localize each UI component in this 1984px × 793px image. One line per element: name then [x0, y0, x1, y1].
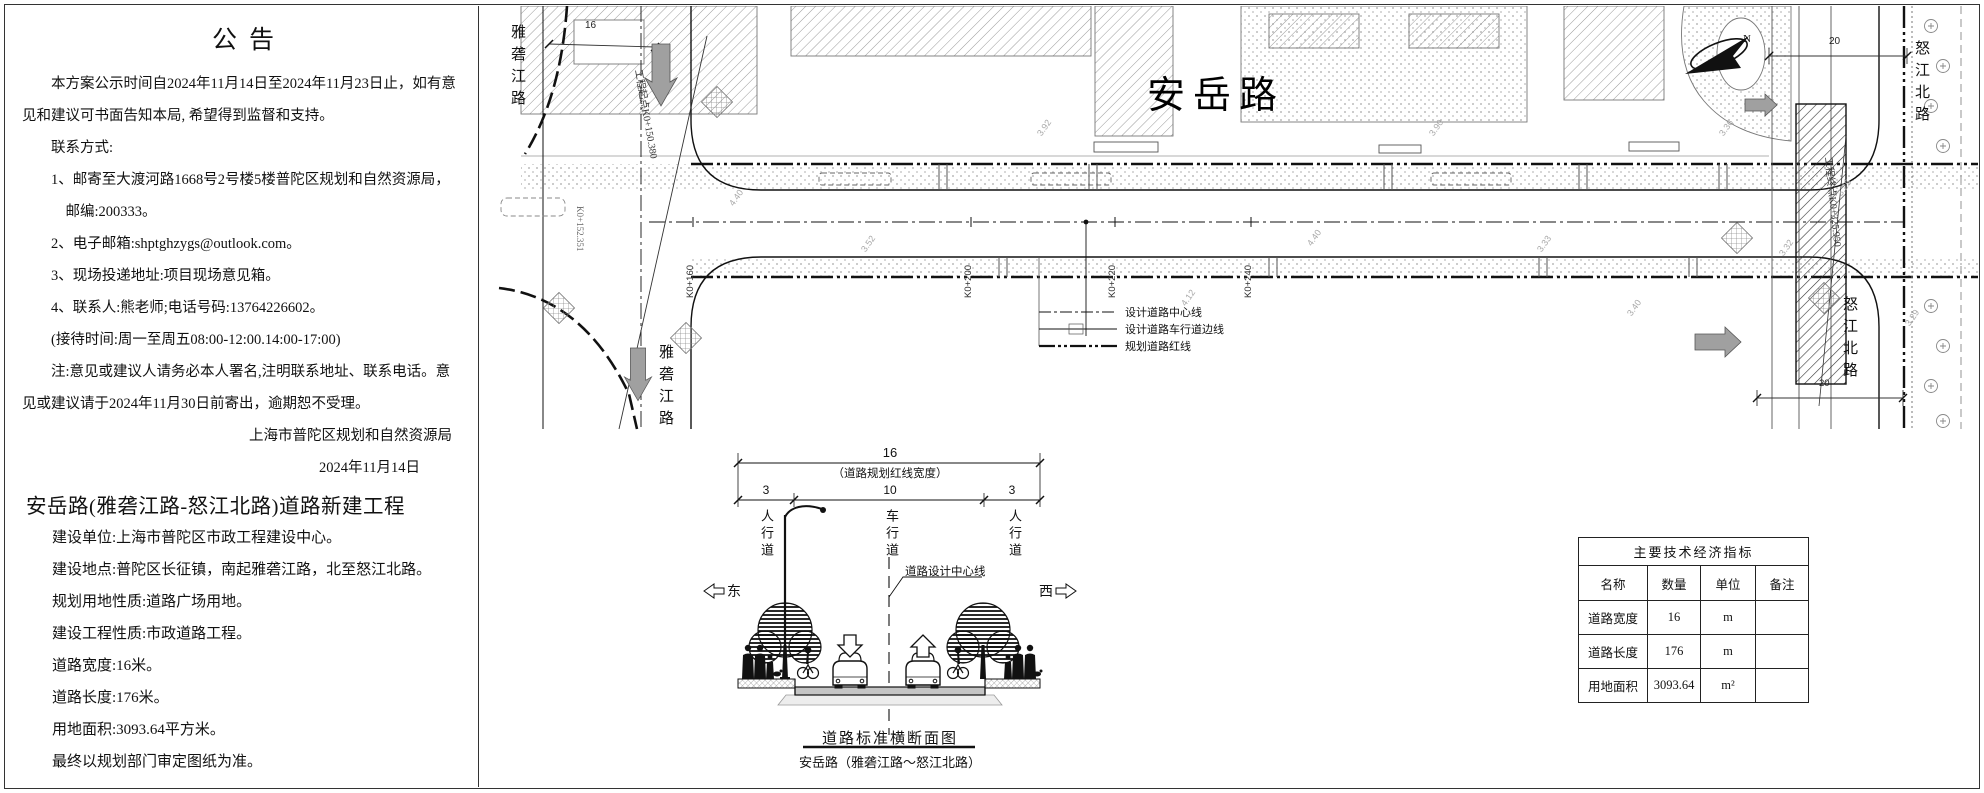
table-cell-name: 用地面积	[1579, 669, 1648, 703]
section-dim-total: 16	[700, 445, 1080, 460]
table-cell-qty: 176	[1648, 635, 1701, 669]
table-header-qty: 数量	[1648, 566, 1701, 601]
west-road-label: 雅砻江路	[507, 24, 528, 112]
table-cell-note	[1756, 601, 1809, 635]
plan-drawing: N 设计道路中心线 设计道路车行道边线 规划道路红线 安岳路 雅砻江路 雅砻江路…	[479, 6, 1978, 436]
project-detail: 用地面积:3093.64平方米。	[22, 714, 464, 746]
lane-label-carriageway: 车行道	[882, 509, 901, 560]
table-cell-unit: m	[1701, 601, 1756, 635]
notice-panel: 公告 本方案公示时间自2024年11月14日至2024年11月23日止，如有意见…	[6, 6, 478, 787]
notice-paragraph: 3、现场投递地址:项目现场意见箱。	[22, 260, 464, 292]
dim-west: 16	[585, 20, 596, 31]
table-cell-qty: 3093.64	[1648, 669, 1701, 703]
section-subtitle: 安岳路（雅砻江路～怒江北路）	[700, 752, 1080, 771]
notice-paragraph: 本方案公示时间自2024年11月14日至2024年11月23日止，如有意见和建议…	[22, 68, 464, 132]
car-icons	[833, 653, 940, 688]
table-title: 主要技术经济指标	[1579, 538, 1809, 566]
project-detail: 建设单位:上海市普陀区市政工程建设中心。	[22, 522, 464, 554]
centerline-label: 道路设计中心线	[905, 563, 1065, 579]
notice-date: 2024年11月14日	[22, 452, 464, 484]
table-cell-note	[1756, 635, 1809, 669]
station-label: K0+240	[1243, 265, 1254, 298]
cyclist-icons	[798, 647, 969, 678]
lane-label-sidewalk: 人行道	[757, 509, 776, 560]
traffic-flow-arrows	[838, 635, 935, 657]
section-dim-right: 3	[992, 483, 1032, 497]
edge-station-label: K0+152.351	[575, 206, 585, 251]
legend-item-centerline: 设计道路中心线	[1125, 305, 1202, 319]
project-detail: 建设地点:普陀区长征镇，南起雅砻江路，北至怒江北路。	[22, 554, 464, 586]
station-label: K0+220	[1107, 265, 1118, 298]
legend-item-edgeline: 设计道路车行道边线	[1125, 322, 1224, 336]
notice-paragraph: (接待时间:周一至周五08:00-12:00.14:00-17:00)	[22, 324, 464, 356]
lane-label-sidewalk: 人行道	[1005, 509, 1024, 560]
project-title: 安岳路(雅砻江路-怒江北路)道路新建工程	[22, 489, 464, 519]
notice-title: 公告	[34, 20, 464, 56]
table-cell-qty: 16	[1648, 601, 1701, 635]
table-cell-unit: m	[1701, 635, 1756, 669]
table-row: 道路宽度 16 m	[1579, 601, 1809, 635]
notice-paragraph: 联系方式:	[22, 132, 464, 164]
project-detail: 道路宽度:16米。	[22, 650, 464, 682]
table-header-name: 名称	[1579, 566, 1648, 601]
sidewalk-bands	[521, 164, 1978, 277]
section-dim-note: （道路规划红线宽度）	[700, 465, 1080, 481]
project-detail: 规划用地性质:道路广场用地。	[22, 586, 464, 618]
roadside-structures	[1094, 142, 1679, 153]
east-road-label: 怒江北路	[1911, 40, 1932, 128]
notice-paragraph: 2、电子邮箱:shptghzygs@outlook.com。	[22, 228, 464, 260]
main-road-label: 安岳路	[1147, 64, 1285, 119]
project-detail: 最终以规划部门审定图纸为准。	[22, 746, 464, 778]
plan-notice-sheet: { "notice": { "title": "公告", "body": [ "…	[0, 0, 1984, 793]
dir-east-label: 东	[724, 581, 744, 601]
table-header-note: 备注	[1756, 566, 1809, 601]
station-label: K0+160	[685, 265, 696, 298]
project-detail: 建设工程性质:市政道路工程。	[22, 618, 464, 650]
table-cell-note	[1756, 669, 1809, 703]
east-road-label: 怒江北路	[1839, 296, 1860, 384]
table-row: 用地面积 3093.64 m²	[1579, 669, 1809, 703]
notice-paragraph: 邮编:200333。	[22, 196, 464, 228]
section-title: 道路标准横断面图	[700, 727, 1080, 748]
notice-paragraph: 注:意见或建议人请务必本人署名,注明联系地址、联系电话。意见或建议请于2024年…	[22, 356, 464, 420]
notice-paragraph: 4、联系人:熊老师;电话号码:13764226602。	[22, 292, 464, 324]
dir-west-label: 西	[1036, 581, 1056, 601]
legend-item-redline: 规划道路红线	[1125, 339, 1191, 353]
table-cell-name: 道路长度	[1579, 635, 1648, 669]
table-cell-name: 道路宽度	[1579, 601, 1648, 635]
dim-east-top: 20	[1829, 36, 1840, 47]
station-label: K0+200	[963, 265, 974, 298]
notice-paragraph: 1、邮寄至大渡河路1668号2号楼5楼普陀区规划和自然资源局，	[22, 164, 464, 196]
cross-section-diagram: 16 （道路规划红线宽度） 3 10 3 人行道 车行道 人行道 道路设计中心线…	[700, 445, 1080, 790]
project-detail: 道路长度:176米。	[22, 682, 464, 714]
notice-signature: 上海市普陀区规划和自然资源局	[22, 420, 464, 452]
indicator-table: 主要技术经济指标 名称 数量 单位 备注 道路宽度 16 m 道路长度 176 …	[1578, 537, 1809, 703]
table-cell-unit: m²	[1701, 669, 1756, 703]
table-header-unit: 单位	[1701, 566, 1756, 601]
west-road-label: 雅砻江路	[655, 344, 676, 432]
dim-east-bottom: 20	[1819, 378, 1830, 389]
table-row: 道路长度 176 m	[1579, 635, 1809, 669]
north-label: N	[1743, 33, 1751, 45]
